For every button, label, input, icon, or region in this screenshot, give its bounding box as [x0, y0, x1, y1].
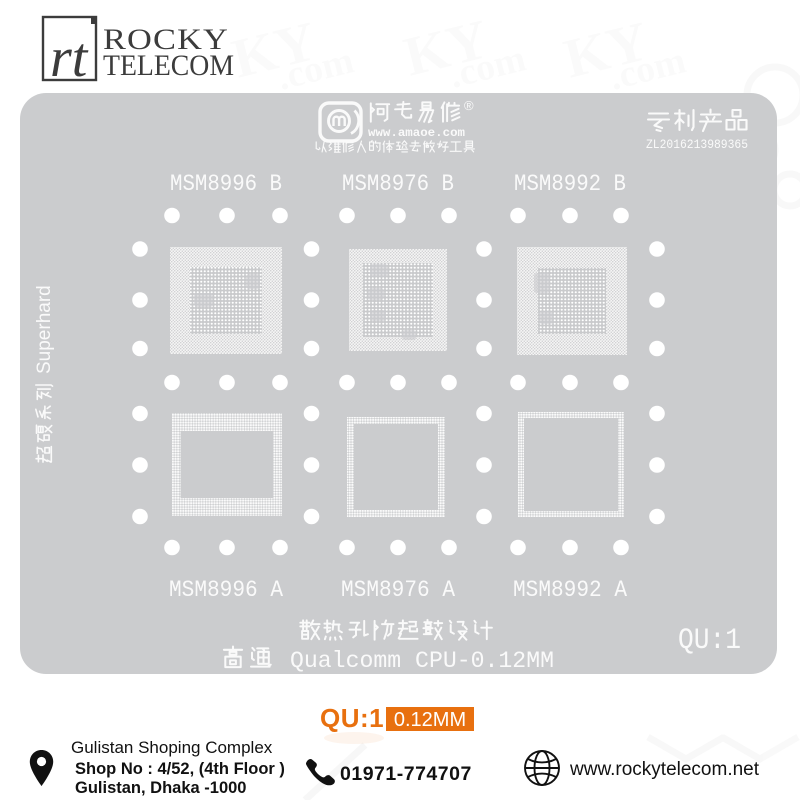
svg-text:MSM8992 B: MSM8992 B — [514, 171, 626, 197]
svg-text:QU:1: QU:1 — [320, 703, 384, 733]
svg-text:01971-774707: 01971-774707 — [340, 763, 472, 785]
svg-text:Gulistan Shoping Complex: Gulistan Shoping Complex — [71, 738, 273, 757]
svg-text:www.rockytelecom.net: www.rockytelecom.net — [569, 759, 760, 780]
svg-text:MSM8996 A: MSM8996 A — [169, 577, 283, 603]
svg-text:QU:1: QU:1 — [678, 624, 741, 658]
svg-text:Qualcomm CPU-0.12MM: Qualcomm CPU-0.12MM — [290, 648, 554, 675]
svg-text:www.amaoe.com: www.amaoe.com — [368, 126, 465, 140]
svg-text:MSM8976 B: MSM8976 B — [342, 171, 454, 197]
svg-text:Gulistan, Dhaka -1000: Gulistan, Dhaka -1000 — [75, 779, 247, 797]
svg-text:rt: rt — [50, 27, 89, 89]
svg-text:TELECOM: TELECOM — [103, 49, 234, 82]
svg-text:0.12MM: 0.12MM — [394, 709, 466, 731]
svg-text:MSM8992 A: MSM8992 A — [513, 577, 627, 603]
svg-text:Shop No : 4/52, (4th Floor ): Shop No : 4/52, (4th Floor ) — [75, 760, 285, 778]
svg-text:MSM8976 A: MSM8976 A — [341, 577, 455, 603]
svg-text:®: ® — [464, 98, 474, 113]
svg-text:ZL2016213989365: ZL2016213989365 — [646, 138, 748, 152]
svg-text:MSM8996 B: MSM8996 B — [170, 171, 282, 197]
svg-text:Superhard: Superhard — [34, 285, 55, 374]
